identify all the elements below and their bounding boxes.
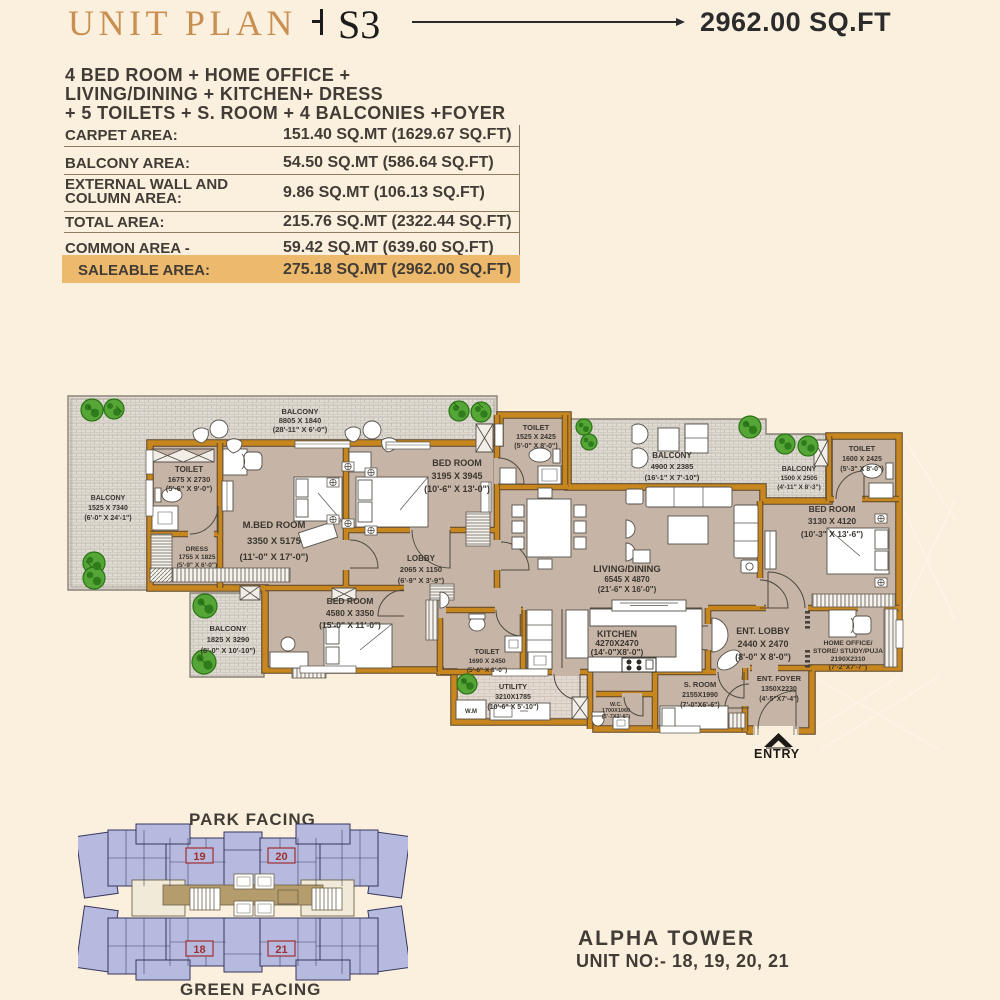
svg-text:(5'-7X3'-6"): (5'-7X3'-6") — [602, 714, 631, 720]
svg-text:(5'-6" X 8'-0"): (5'-6" X 8'-0") — [467, 667, 507, 674]
svg-text:2155X1990: 2155X1990 — [682, 692, 718, 699]
svg-text:(7'-0"X6'-6"): (7'-0"X6'-6") — [680, 702, 720, 709]
svg-text:(28'-11" X 6'-0"): (28'-11" X 6'-0") — [273, 425, 328, 434]
svg-text:1500 X 2505: 1500 X 2505 — [781, 475, 818, 482]
svg-text:4580 X 3350: 4580 X 3350 — [326, 608, 374, 618]
svg-text:1525 X 2425: 1525 X 2425 — [516, 434, 556, 441]
svg-text:21: 21 — [275, 944, 287, 956]
svg-text:3130 X 4120: 3130 X 4120 — [808, 516, 856, 526]
svg-text:1525 X 7340: 1525 X 7340 — [88, 505, 128, 512]
svg-text:LOBBY: LOBBY — [407, 554, 436, 563]
svg-text:(10'-3" X 13'-6"): (10'-3" X 13'-6") — [801, 529, 863, 539]
svg-text:(4'-5"X7'-4"): (4'-5"X7'-4") — [759, 696, 799, 703]
svg-text:(11'-0" X 17'-0"): (11'-0" X 17'-0") — [240, 552, 309, 563]
svg-text:6545 X 4870: 6545 X 4870 — [604, 575, 650, 584]
svg-text:4900 X 2385: 4900 X 2385 — [651, 462, 694, 471]
svg-text:1690 X 2450: 1690 X 2450 — [469, 658, 506, 665]
svg-text:W.M: W.M — [465, 709, 477, 715]
svg-text:ENT. LOBBY: ENT. LOBBY — [736, 626, 790, 636]
svg-text:BALCONY: BALCONY — [782, 466, 817, 473]
svg-text:3195 X 3945: 3195 X 3945 — [431, 471, 482, 481]
svg-text:(6'-0" X 24'-1"): (6'-0" X 24'-1") — [84, 515, 131, 522]
svg-text:(6'-0" X 10'-10"): (6'-0" X 10'-10") — [201, 646, 256, 655]
svg-text:18: 18 — [193, 944, 205, 956]
svg-text:(5'-0" X 8'-0"): (5'-0" X 8'-0") — [514, 443, 557, 450]
svg-text:3350 X 5175: 3350 X 5175 — [247, 536, 302, 547]
svg-text:(15'-0" X 11'-0"): (15'-0" X 11'-0") — [319, 620, 381, 630]
svg-text:(6'-9" X 3'-9"): (6'-9" X 3'-9") — [398, 576, 445, 585]
svg-text:(14'-0"X8'-0"): (14'-0"X8'-0") — [591, 647, 644, 657]
svg-text:UTILITY: UTILITY — [499, 682, 527, 691]
svg-text:(10'-6" X 5'-10"): (10'-6" X 5'-10") — [487, 704, 538, 711]
svg-text:(10'-6" X 13'-0"): (10'-6" X 13'-0") — [424, 484, 490, 494]
svg-text:(7'-2"X7'-7"): (7'-2"X7'-7") — [829, 664, 867, 671]
svg-text:STORE/ STUDY/PUJA: STORE/ STUDY/PUJA — [813, 648, 883, 655]
svg-text:20: 20 — [275, 851, 287, 863]
svg-text:(21'-6" X 16'-0"): (21'-6" X 16'-0") — [598, 585, 657, 594]
svg-text:BED ROOM: BED ROOM — [327, 596, 374, 606]
svg-text:(16'-1" X 7'-10"): (16'-1" X 7'-10") — [645, 473, 700, 482]
svg-text:BED ROOM: BED ROOM — [432, 458, 482, 468]
svg-text:M.BED ROOM: M.BED ROOM — [243, 520, 306, 531]
svg-text:TOILET: TOILET — [523, 423, 550, 432]
svg-text:ENT. FOYER: ENT. FOYER — [757, 674, 802, 683]
svg-text:(5'-9" X 6'-0"): (5'-9" X 6'-0") — [177, 562, 217, 569]
svg-text:1350X2230: 1350X2230 — [761, 686, 797, 693]
svg-text:ENTRY: ENTRY — [754, 747, 800, 761]
svg-text:19: 19 — [193, 851, 205, 863]
svg-text:3210X1785: 3210X1785 — [495, 694, 531, 701]
svg-text:TOILET: TOILET — [175, 465, 203, 474]
svg-text:BED ROOM: BED ROOM — [809, 504, 856, 514]
svg-text:1600 X 2425: 1600 X 2425 — [842, 456, 882, 463]
svg-text:TOILET: TOILET — [475, 649, 500, 656]
svg-text:2190X2310: 2190X2310 — [831, 656, 866, 663]
svg-text:BALCONY: BALCONY — [652, 451, 692, 460]
svg-text:DRESS: DRESS — [186, 546, 209, 553]
svg-text:BALCONY: BALCONY — [91, 495, 126, 502]
svg-text:1825 X 3290: 1825 X 3290 — [207, 635, 250, 644]
svg-text:1675 X 2730: 1675 X 2730 — [168, 475, 211, 484]
svg-text:S. ROOM: S. ROOM — [684, 680, 717, 689]
svg-text:8805 X 1840: 8805 X 1840 — [279, 416, 322, 425]
svg-text:TOILET: TOILET — [849, 444, 876, 453]
svg-text:(8'-0" X 8'-0"): (8'-0" X 8'-0") — [735, 652, 791, 662]
svg-text:BALCONY: BALCONY — [281, 407, 318, 416]
svg-text:BALCONY: BALCONY — [209, 624, 246, 633]
svg-text:(4'-11" X 8'-3"): (4'-11" X 8'-3") — [777, 484, 821, 491]
svg-text:2440 X 2470: 2440 X 2470 — [737, 639, 788, 649]
svg-text:LIVING/DINING: LIVING/DINING — [593, 564, 661, 575]
svg-text:1755 X 1825: 1755 X 1825 — [179, 554, 216, 561]
svg-text:HOME OFFICE/: HOME OFFICE/ — [823, 640, 872, 647]
svg-text:(5'-3" X 8'-0"): (5'-3" X 8'-0") — [840, 466, 883, 473]
svg-text:2065 X 1150: 2065 X 1150 — [400, 565, 442, 574]
svg-text:(5'-6" X 9'-0"): (5'-6" X 9'-0") — [166, 484, 213, 493]
